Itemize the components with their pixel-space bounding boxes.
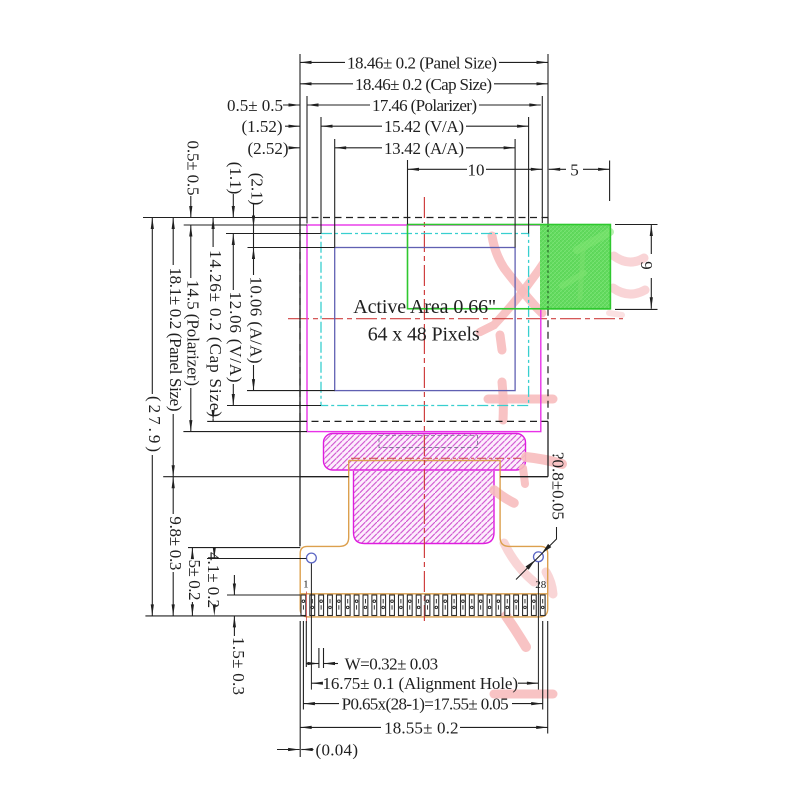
svg-text:(1.52): (1.52): [241, 117, 282, 136]
svg-text:W=0.32± 0.03: W=0.32± 0.03: [345, 655, 439, 674]
svg-text:P0.65x(28-1)=17.55± 0.05: P0.65x(28-1)=17.55± 0.05: [342, 695, 509, 714]
svg-text:5± 0.2: 5± 0.2: [185, 560, 204, 601]
svg-text:0.5± 0.5: 0.5± 0.5: [184, 141, 203, 196]
svg-text:4.1± 0.2: 4.1± 0.2: [204, 552, 223, 608]
svg-text:18.55± 0.2: 18.55± 0.2: [384, 718, 458, 737]
svg-text:17.46 (Polarizer): 17.46 (Polarizer): [372, 96, 477, 115]
svg-text:5: 5: [570, 160, 579, 179]
svg-text:?0.8±0.05: ?0.8±0.05: [549, 452, 568, 520]
svg-text:14.5 (Polarizer): 14.5 (Polarizer): [184, 280, 203, 386]
svg-text:6: 6: [637, 261, 656, 270]
svg-text:(2.1): (2.1): [247, 173, 266, 206]
svg-text:64 x 48 Pixels: 64 x 48 Pixels: [368, 324, 480, 346]
svg-text:10: 10: [468, 160, 485, 179]
svg-text:18.1± 0.2 (Panel Size): 18.1± 0.2 (Panel Size): [166, 268, 185, 412]
svg-text:10.06 (A/A): 10.06 (A/A): [246, 277, 265, 364]
svg-text:(2.52): (2.52): [247, 139, 288, 158]
svg-text:(0.04): (0.04): [316, 741, 359, 760]
svg-text:1.5± 0.3: 1.5± 0.3: [229, 637, 248, 695]
svg-text:12.06 (V/A): 12.06 (V/A): [226, 292, 245, 383]
svg-text:Active Area 0.66": Active Area 0.66": [353, 296, 496, 318]
svg-text:18.46± 0.2 (Cap Size): 18.46± 0.2 (Cap Size): [355, 75, 492, 94]
svg-text:13.42 (A/A): 13.42 (A/A): [384, 139, 464, 158]
svg-text:15.42 (V/A): 15.42 (V/A): [384, 117, 464, 136]
svg-text:1: 1: [303, 578, 309, 590]
svg-text:18.46± 0.2 (Panel Size): 18.46± 0.2 (Panel Size): [347, 53, 497, 72]
svg-text:28: 28: [535, 579, 547, 591]
svg-text:14.26± 0.2 (Cap Size): 14.26± 0.2 (Cap Size): [206, 250, 225, 417]
svg-text:9.8± 0.3: 9.8± 0.3: [166, 516, 185, 570]
svg-text:0.5± 0.5: 0.5± 0.5: [227, 96, 283, 115]
svg-text:(1.1): (1.1): [226, 162, 245, 195]
svg-text:16.75± 0.1 (Alignment Hole): 16.75± 0.1 (Alignment Hole): [323, 674, 519, 693]
